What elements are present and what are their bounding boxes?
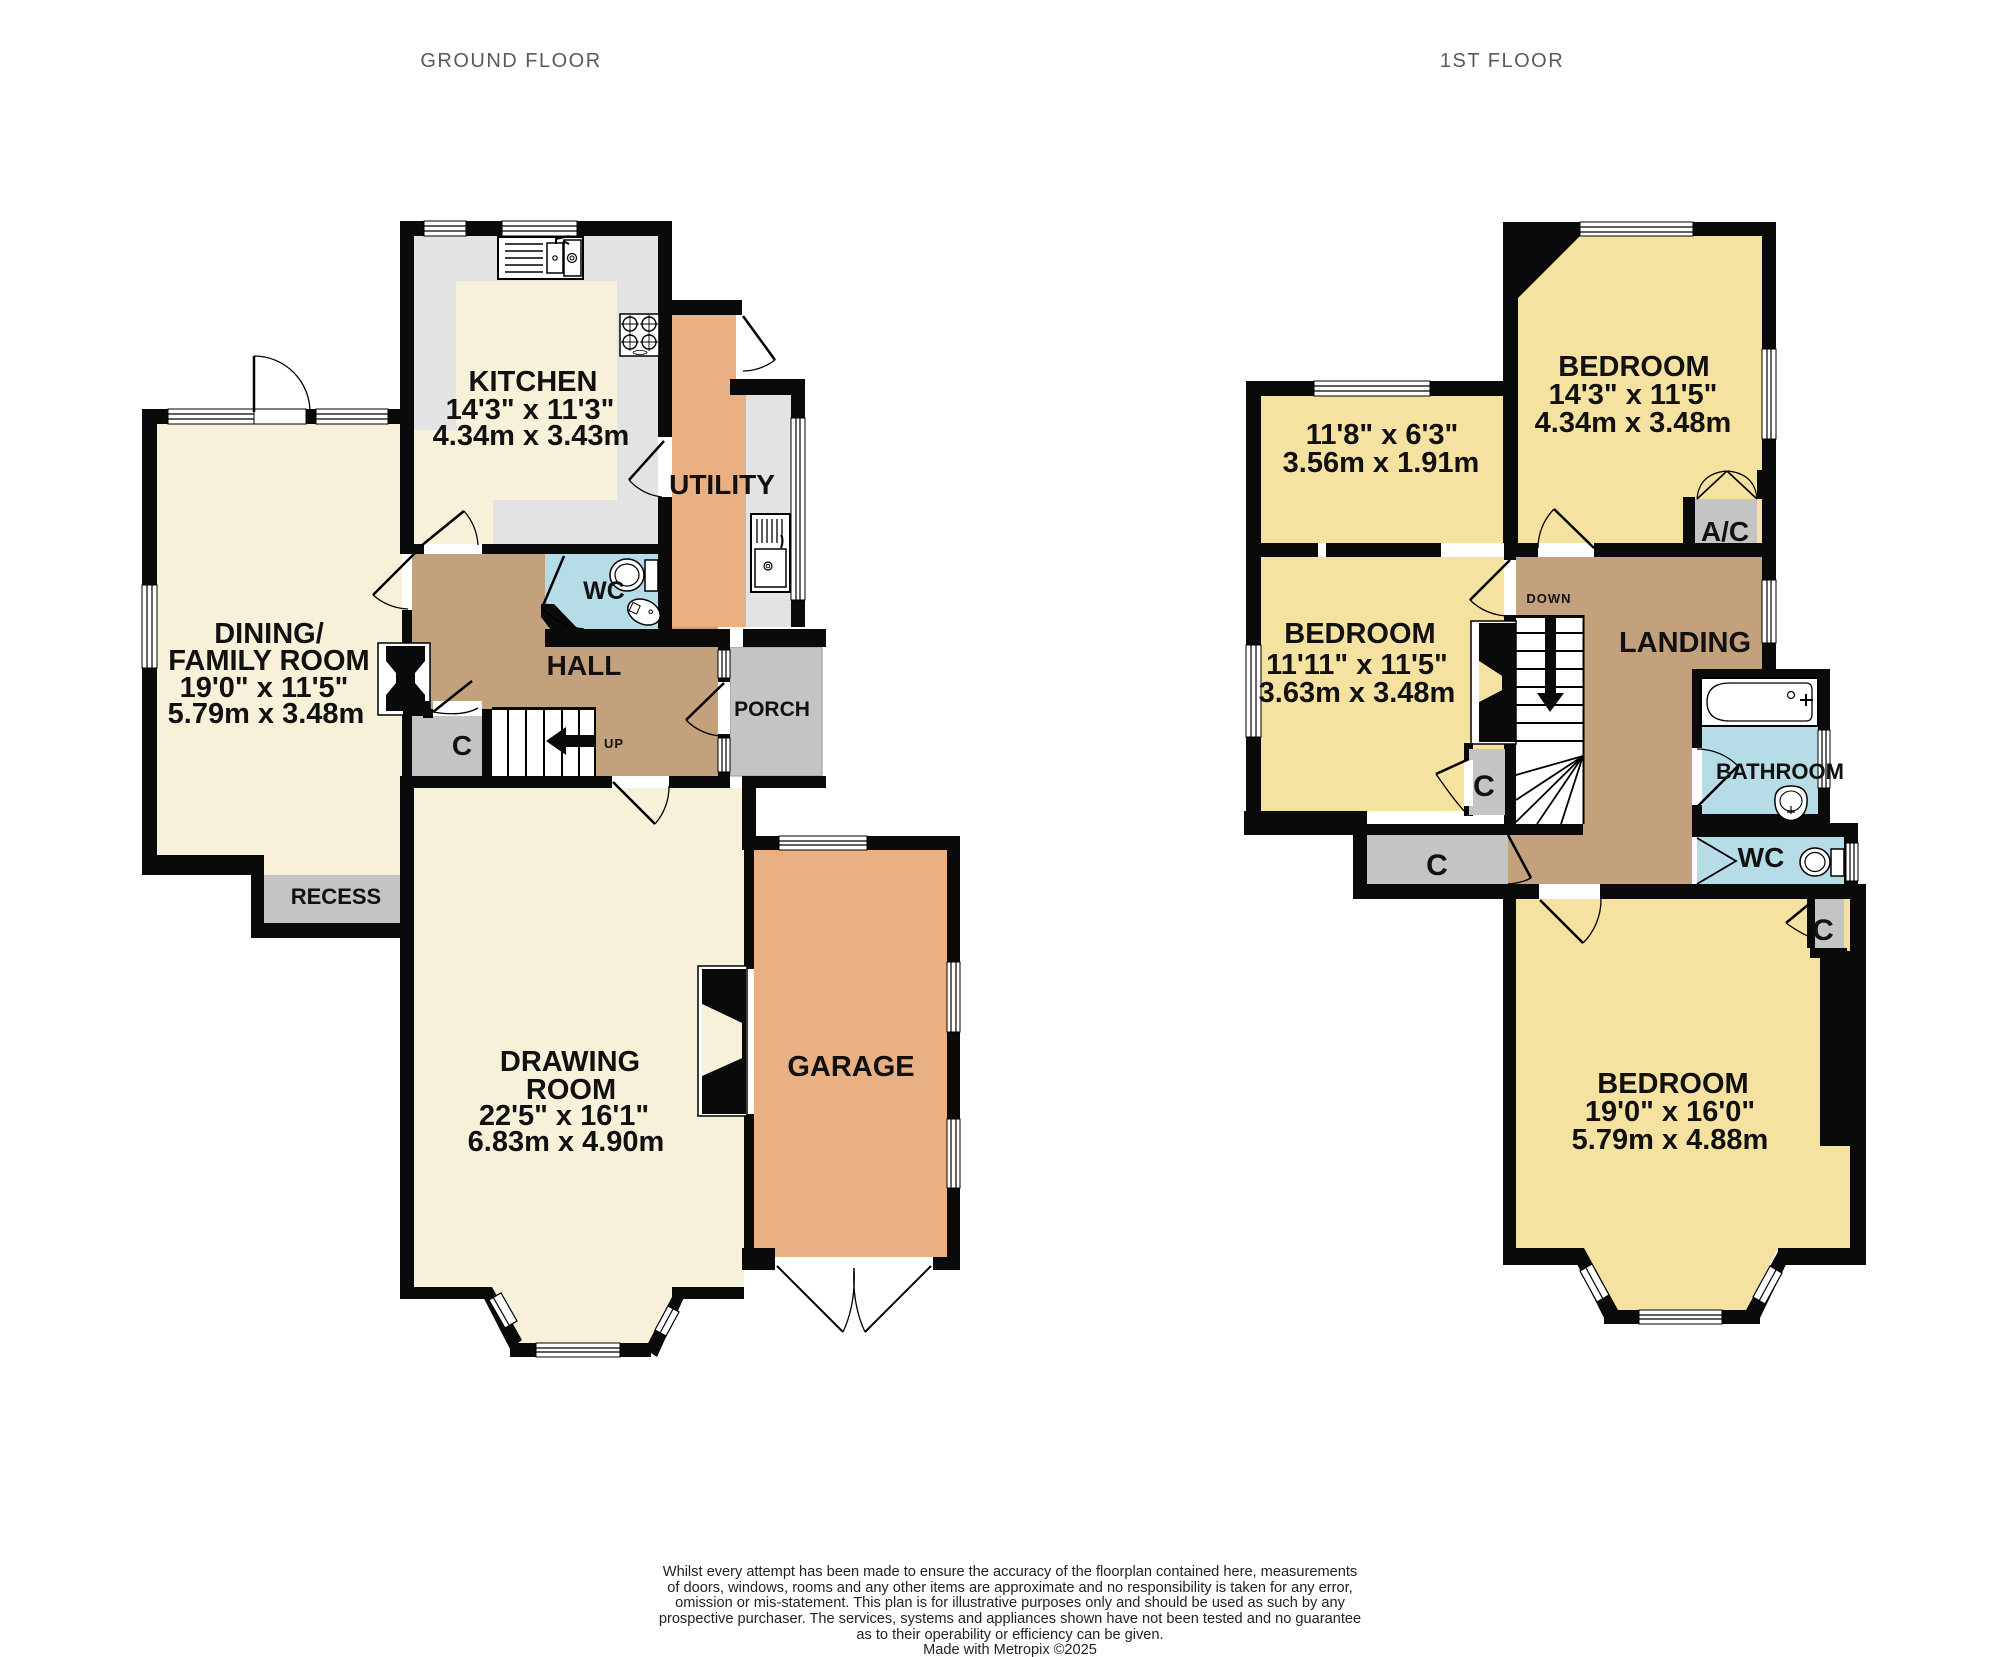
svg-text:A/C: A/C [1701,516,1749,547]
svg-text:C: C [1426,849,1448,882]
svg-text:DOWN: DOWN [1526,591,1571,606]
svg-text:PORCH: PORCH [734,698,810,721]
svg-text:LANDING: LANDING [1619,627,1751,659]
svg-text:5.79m x 4.88m: 5.79m x 4.88m [1572,1124,1769,1156]
svg-text:prospective purchaser. The ser: prospective purchaser. The services, sys… [659,1611,1361,1627]
svg-text:GROUND FLOOR: GROUND FLOOR [420,50,601,72]
svg-text:4.34m x 3.48m: 4.34m x 3.48m [1535,407,1732,439]
svg-text:C: C [1812,914,1834,947]
svg-text:WC: WC [1738,842,1785,873]
svg-text:C: C [1473,770,1495,803]
svg-text:4.34m x 3.43m: 4.34m x 3.43m [433,420,630,452]
svg-text:WC: WC [583,577,625,605]
svg-text:BEDROOM: BEDROOM [1284,618,1435,650]
svg-text:Whilst every attempt has been: Whilst every attempt has been made to en… [663,1564,1357,1580]
svg-text:UP: UP [604,736,624,751]
svg-text:1ST FLOOR: 1ST FLOOR [1440,50,1564,72]
svg-text:UTILITY: UTILITY [669,469,775,500]
svg-text:3.56m x 1.91m: 3.56m x 1.91m [1283,447,1480,479]
svg-text:5.79m x 3.48m: 5.79m x 3.48m [168,698,365,730]
svg-text:omission or mis-statement. Thi: omission or mis-statement. This plan is … [675,1595,1345,1611]
svg-text:Made with Metropix ©2025: Made with Metropix ©2025 [923,1642,1097,1657]
svg-text:3.63m x 3.48m: 3.63m x 3.48m [1259,677,1456,709]
svg-text:6.83m x 4.90m: 6.83m x 4.90m [468,1126,665,1158]
svg-text:HALL: HALL [547,650,622,681]
svg-text:C: C [452,730,472,761]
svg-text:of doors, windows, rooms and a: of doors, windows, rooms and any other i… [667,1580,1352,1596]
svg-text:GARAGE: GARAGE [787,1051,914,1083]
svg-text:RECESS: RECESS [291,884,381,909]
svg-text:BATHROOM: BATHROOM [1716,759,1844,784]
svg-text:as to their operability or eff: as to their operability or efficiency ca… [856,1627,1163,1643]
